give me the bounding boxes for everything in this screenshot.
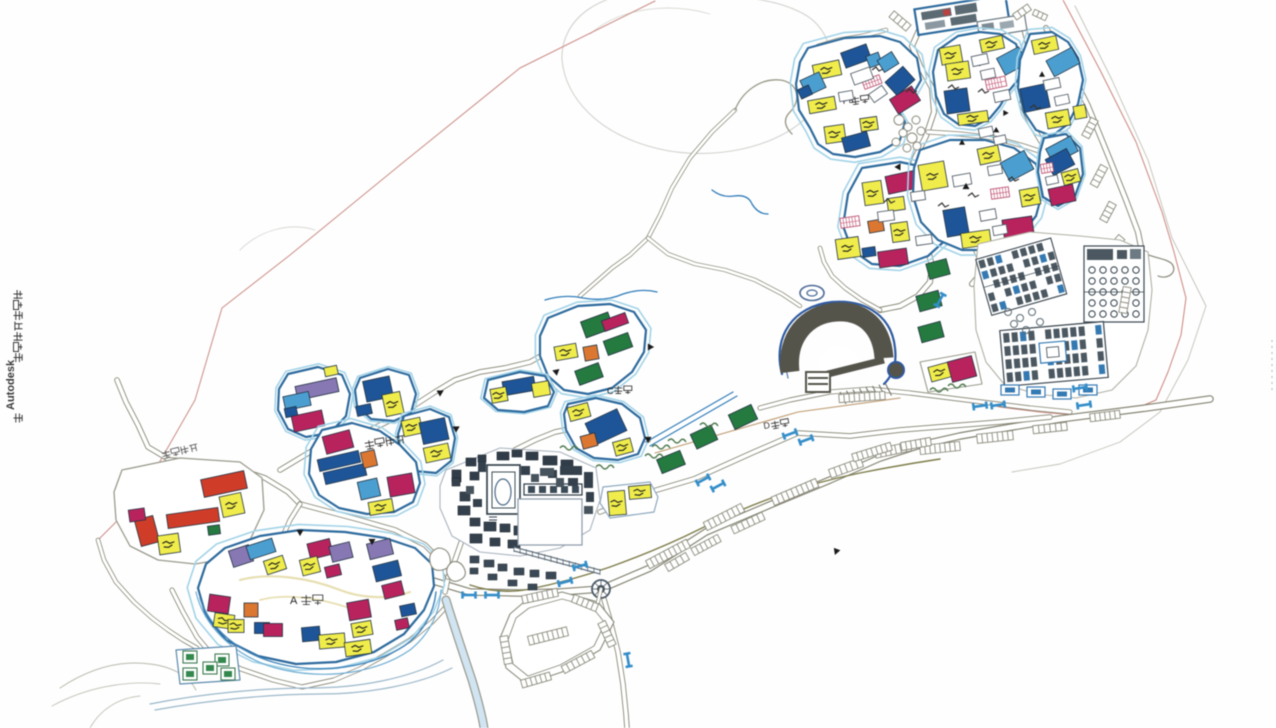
svg-text:C: C [607,386,614,396]
svg-text:Autodesk: Autodesk [5,359,17,410]
svg-text:A: A [290,595,298,607]
